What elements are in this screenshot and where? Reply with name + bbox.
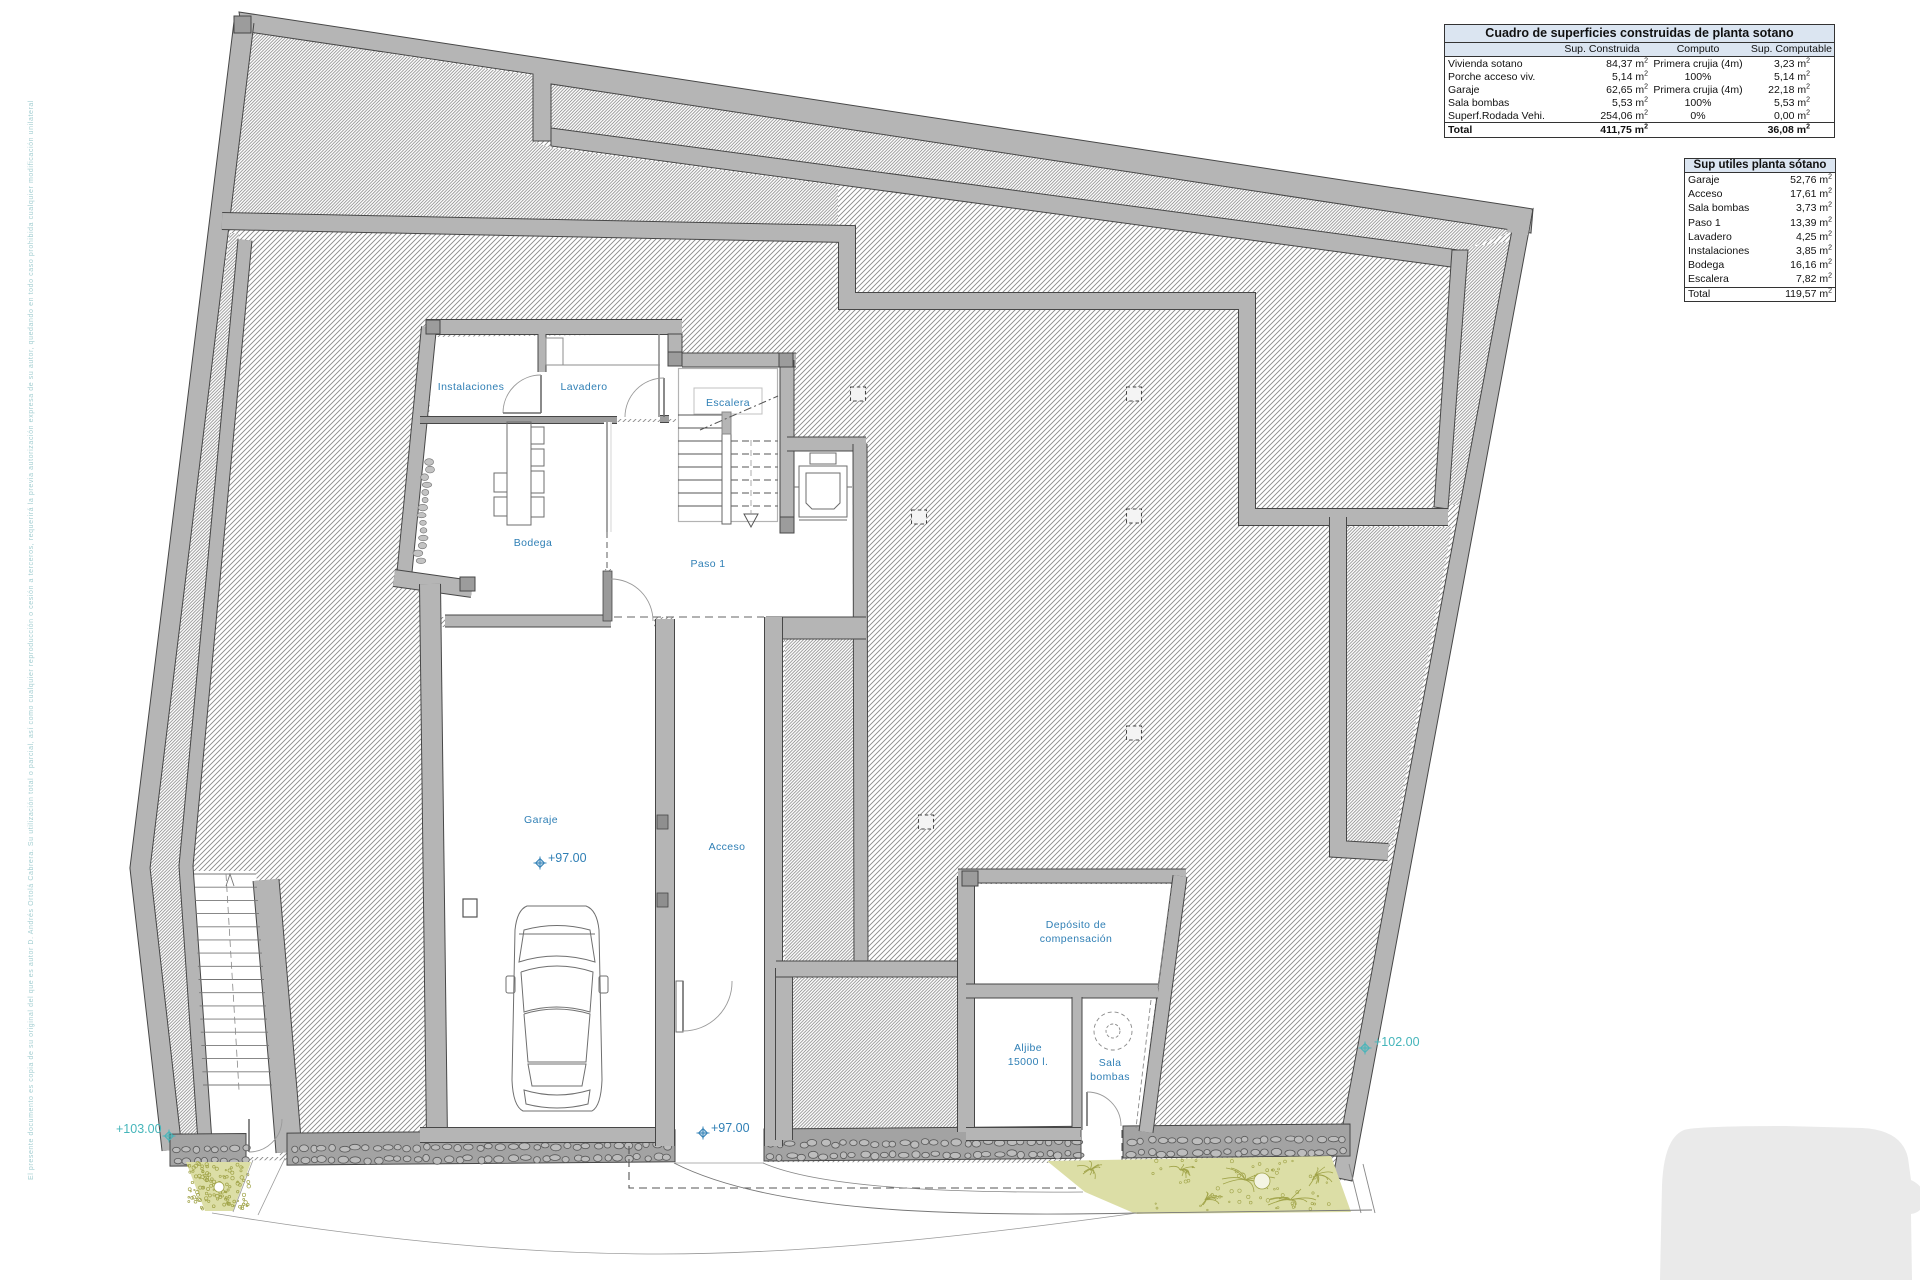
svg-text:compensación: compensación [1040, 933, 1113, 945]
svg-text:+103.00: +103.00 [116, 1122, 162, 1136]
svg-text:Depósito de: Depósito de [1046, 919, 1106, 931]
svg-text:Aljibe: Aljibe [1014, 1042, 1042, 1054]
svg-text:Bodega: Bodega [514, 537, 553, 549]
svg-text:Lavadero: Lavadero [561, 381, 608, 393]
svg-text:Paso 1: Paso 1 [690, 558, 725, 570]
svg-text:15000 l.: 15000 l. [1008, 1056, 1049, 1068]
svg-text:Instalaciones: Instalaciones [438, 381, 505, 393]
svg-text:El presente documento es copia: El presente documento es copia de su ori… [28, 100, 35, 1180]
svg-text:Acceso: Acceso [709, 841, 746, 853]
svg-text:Garaje: Garaje [524, 814, 558, 826]
svg-text:Escalera: Escalera [706, 397, 750, 409]
svg-text:bombas: bombas [1090, 1071, 1130, 1083]
svg-text:+102.00: +102.00 [1374, 1035, 1420, 1049]
svg-text:Sala: Sala [1099, 1057, 1122, 1069]
svg-text:+97.00: +97.00 [548, 851, 587, 865]
svg-text:+97.00: +97.00 [711, 1121, 750, 1135]
